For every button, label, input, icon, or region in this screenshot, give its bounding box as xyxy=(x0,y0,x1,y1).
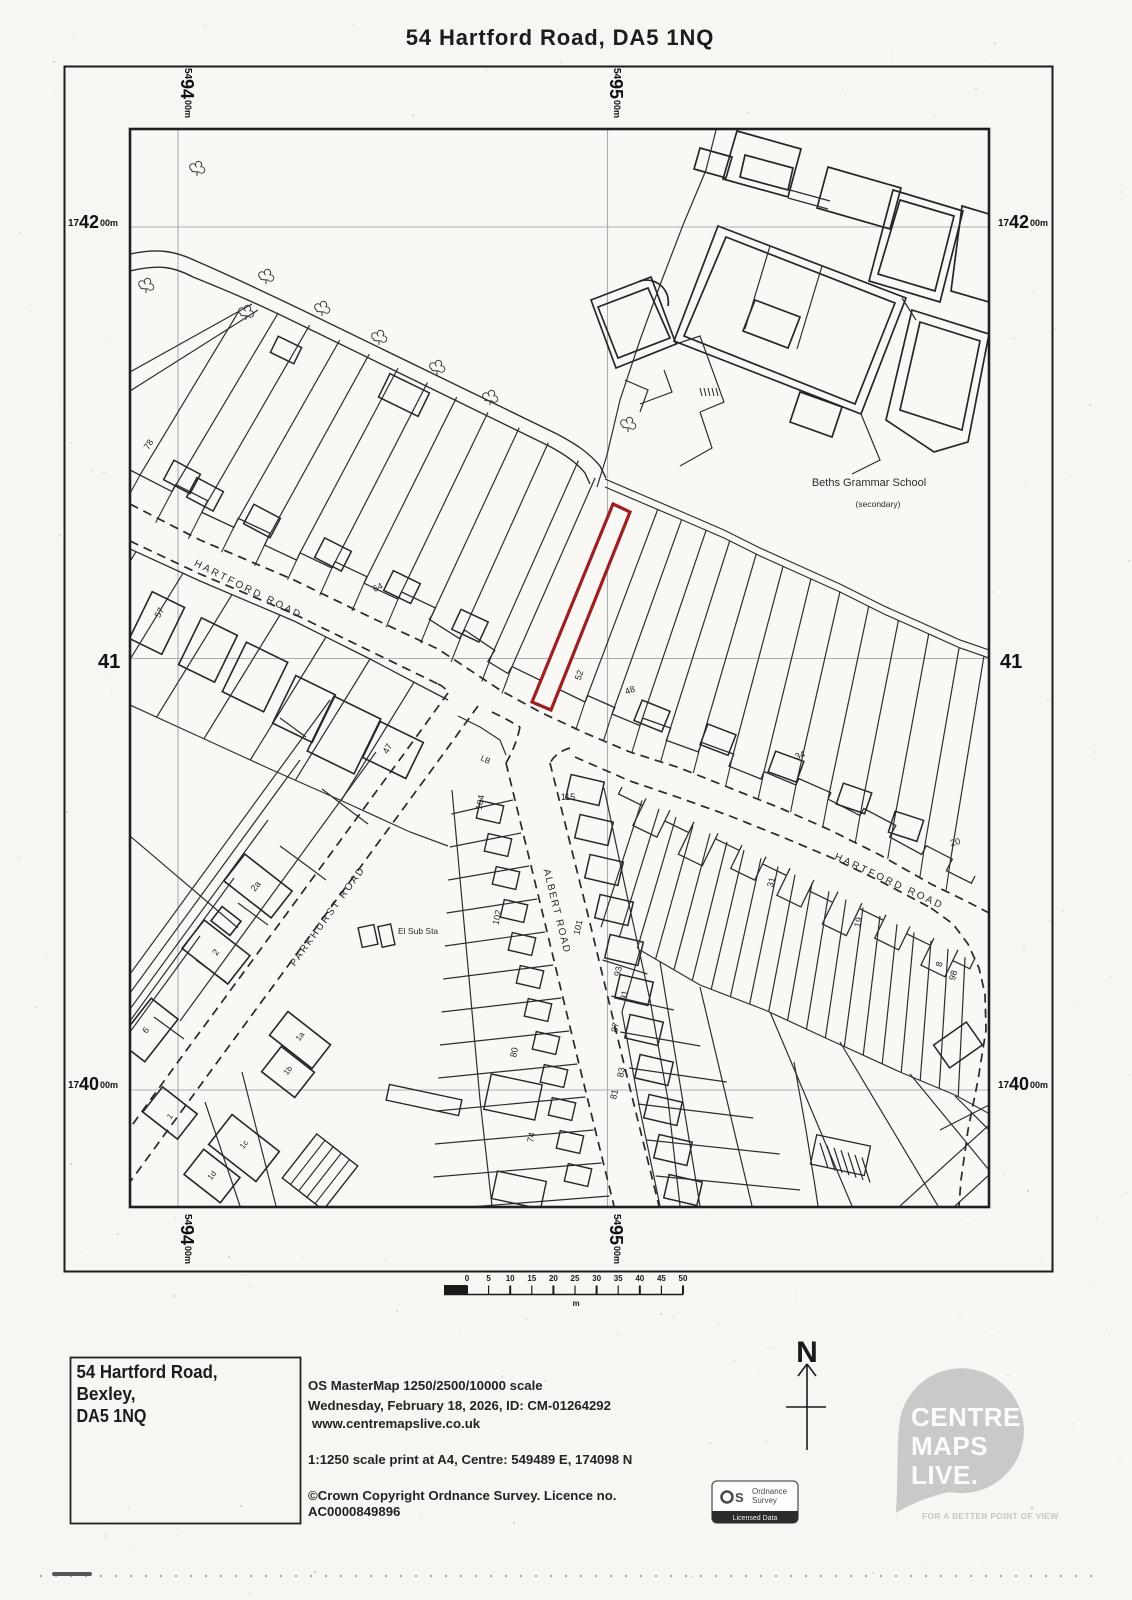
svg-text:80: 80 xyxy=(508,1046,520,1058)
svg-text:DA5 1NQ: DA5 1NQ xyxy=(77,1405,147,1426)
svg-text:00m: 00m xyxy=(100,218,118,228)
svg-text:00m: 00m xyxy=(1030,1080,1048,1090)
svg-text:45: 45 xyxy=(657,1274,666,1283)
svg-text:17: 17 xyxy=(998,218,1010,229)
svg-text:93: 93 xyxy=(612,965,624,977)
svg-text:www.centremapslive.co.uk: www.centremapslive.co.uk xyxy=(311,1416,481,1431)
svg-text:15: 15 xyxy=(527,1274,536,1283)
svg-text:42: 42 xyxy=(79,212,99,232)
svg-text:95: 95 xyxy=(606,79,626,99)
svg-text:LIVE.: LIVE. xyxy=(911,1460,979,1490)
svg-text:54: 54 xyxy=(182,68,193,80)
svg-text:00m: 00m xyxy=(100,1080,118,1090)
svg-text:MAPS: MAPS xyxy=(911,1431,988,1461)
svg-text:S: S xyxy=(735,1490,744,1505)
svg-text:Licensed Data: Licensed Data xyxy=(733,1515,778,1522)
svg-text:©Crown Copyright Ordnance Surv: ©Crown Copyright Ordnance Survey. Licenc… xyxy=(308,1488,616,1503)
svg-text:40: 40 xyxy=(79,1074,99,1094)
svg-text:m: m xyxy=(572,1299,579,1308)
svg-text:25: 25 xyxy=(571,1274,580,1283)
svg-text:40: 40 xyxy=(635,1274,644,1283)
svg-text:Beths Grammar School: Beths Grammar School xyxy=(812,477,926,489)
svg-text:40: 40 xyxy=(1009,1074,1029,1094)
svg-text:83: 83 xyxy=(615,1066,627,1078)
svg-text:115: 115 xyxy=(561,792,575,802)
svg-text:N: N xyxy=(796,1336,818,1369)
svg-text:35: 35 xyxy=(614,1274,623,1283)
svg-text:0: 0 xyxy=(465,1274,470,1283)
svg-text:94: 94 xyxy=(177,79,197,99)
svg-text:54: 54 xyxy=(182,1214,193,1226)
svg-text:87: 87 xyxy=(609,1021,621,1033)
svg-text:95: 95 xyxy=(606,1225,626,1245)
svg-text:54: 54 xyxy=(611,1214,622,1226)
svg-text:17: 17 xyxy=(68,218,80,229)
svg-text:91: 91 xyxy=(618,989,630,1001)
svg-text:41: 41 xyxy=(1000,651,1022,673)
svg-text:Survey: Survey xyxy=(752,1496,777,1505)
svg-text:Ordnance: Ordnance xyxy=(752,1487,788,1496)
svg-text:5: 5 xyxy=(486,1274,491,1283)
svg-text:(secondary): (secondary) xyxy=(856,499,901,509)
svg-text:CENTRE: CENTRE xyxy=(911,1402,1021,1432)
svg-text:El Sub Sta: El Sub Sta xyxy=(398,926,438,936)
svg-text:20: 20 xyxy=(549,1274,558,1283)
svg-text:10: 10 xyxy=(506,1274,515,1283)
svg-text:74: 74 xyxy=(525,1131,537,1143)
svg-text:42: 42 xyxy=(1009,212,1029,232)
svg-text:94: 94 xyxy=(177,1225,197,1245)
svg-text:00m: 00m xyxy=(612,100,622,118)
svg-text:81: 81 xyxy=(608,1088,620,1100)
svg-text:FOR A BETTER POINT OF VIEW: FOR A BETTER POINT OF VIEW xyxy=(922,1511,1059,1521)
svg-text:00m: 00m xyxy=(1030,218,1048,228)
svg-text:30: 30 xyxy=(592,1274,601,1283)
svg-text:00m: 00m xyxy=(612,1246,622,1264)
svg-text:17: 17 xyxy=(998,1080,1010,1091)
svg-text:54 Hartford Road, DA5 1NQ: 54 Hartford Road, DA5 1NQ xyxy=(406,25,715,50)
svg-text:Bexley,: Bexley, xyxy=(77,1383,136,1404)
svg-text:00m: 00m xyxy=(183,100,193,118)
svg-text:54 Hartford Road,: 54 Hartford Road, xyxy=(77,1361,218,1382)
svg-text:17: 17 xyxy=(68,1080,80,1091)
svg-text:41: 41 xyxy=(98,651,120,673)
svg-text:AC0000849896: AC0000849896 xyxy=(308,1504,400,1519)
svg-text:1:1250 scale print at A4, Cent: 1:1250 scale print at A4, Centre: 549489… xyxy=(308,1452,632,1467)
svg-text:Wednesday, February 18, 2026,: Wednesday, February 18, 2026, ID: CM-012… xyxy=(308,1398,611,1413)
svg-text:54: 54 xyxy=(611,68,622,80)
svg-text:50: 50 xyxy=(679,1274,688,1283)
svg-text:00m: 00m xyxy=(183,1246,193,1264)
svg-text:OS MasterMap 1250/2500/10000 s: OS MasterMap 1250/2500/10000 scale xyxy=(308,1378,543,1393)
